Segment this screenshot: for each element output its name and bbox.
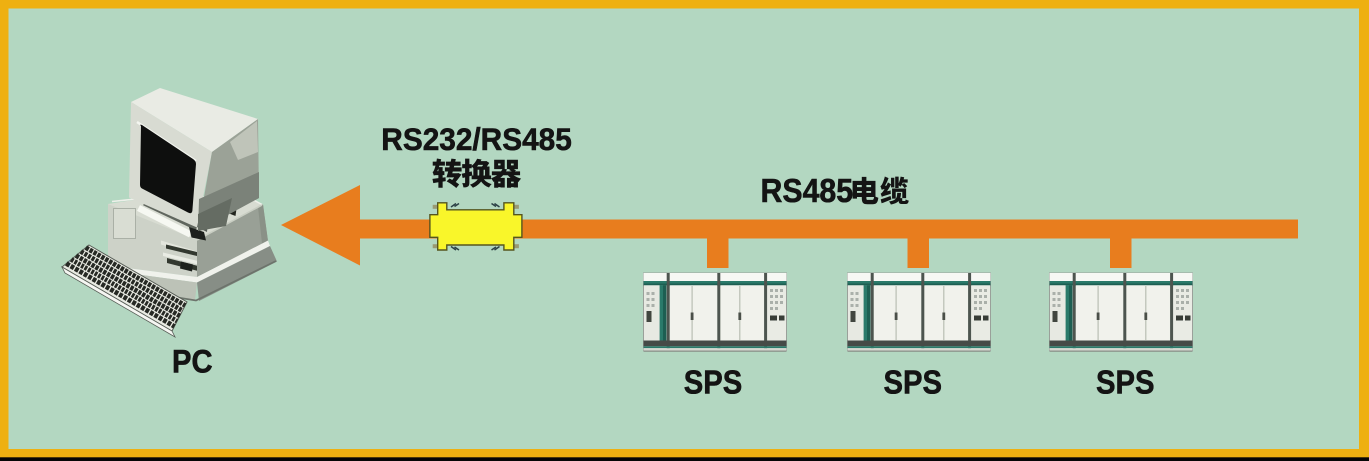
svg-text:SPS: SPS [684,364,743,401]
svg-text:RS232/RS485: RS232/RS485 [381,121,572,157]
svg-text:RS485: RS485 [761,172,854,209]
svg-text:SPS: SPS [1096,364,1155,401]
svg-text:SPS: SPS [884,364,943,401]
svg-text:PC: PC [172,343,213,379]
